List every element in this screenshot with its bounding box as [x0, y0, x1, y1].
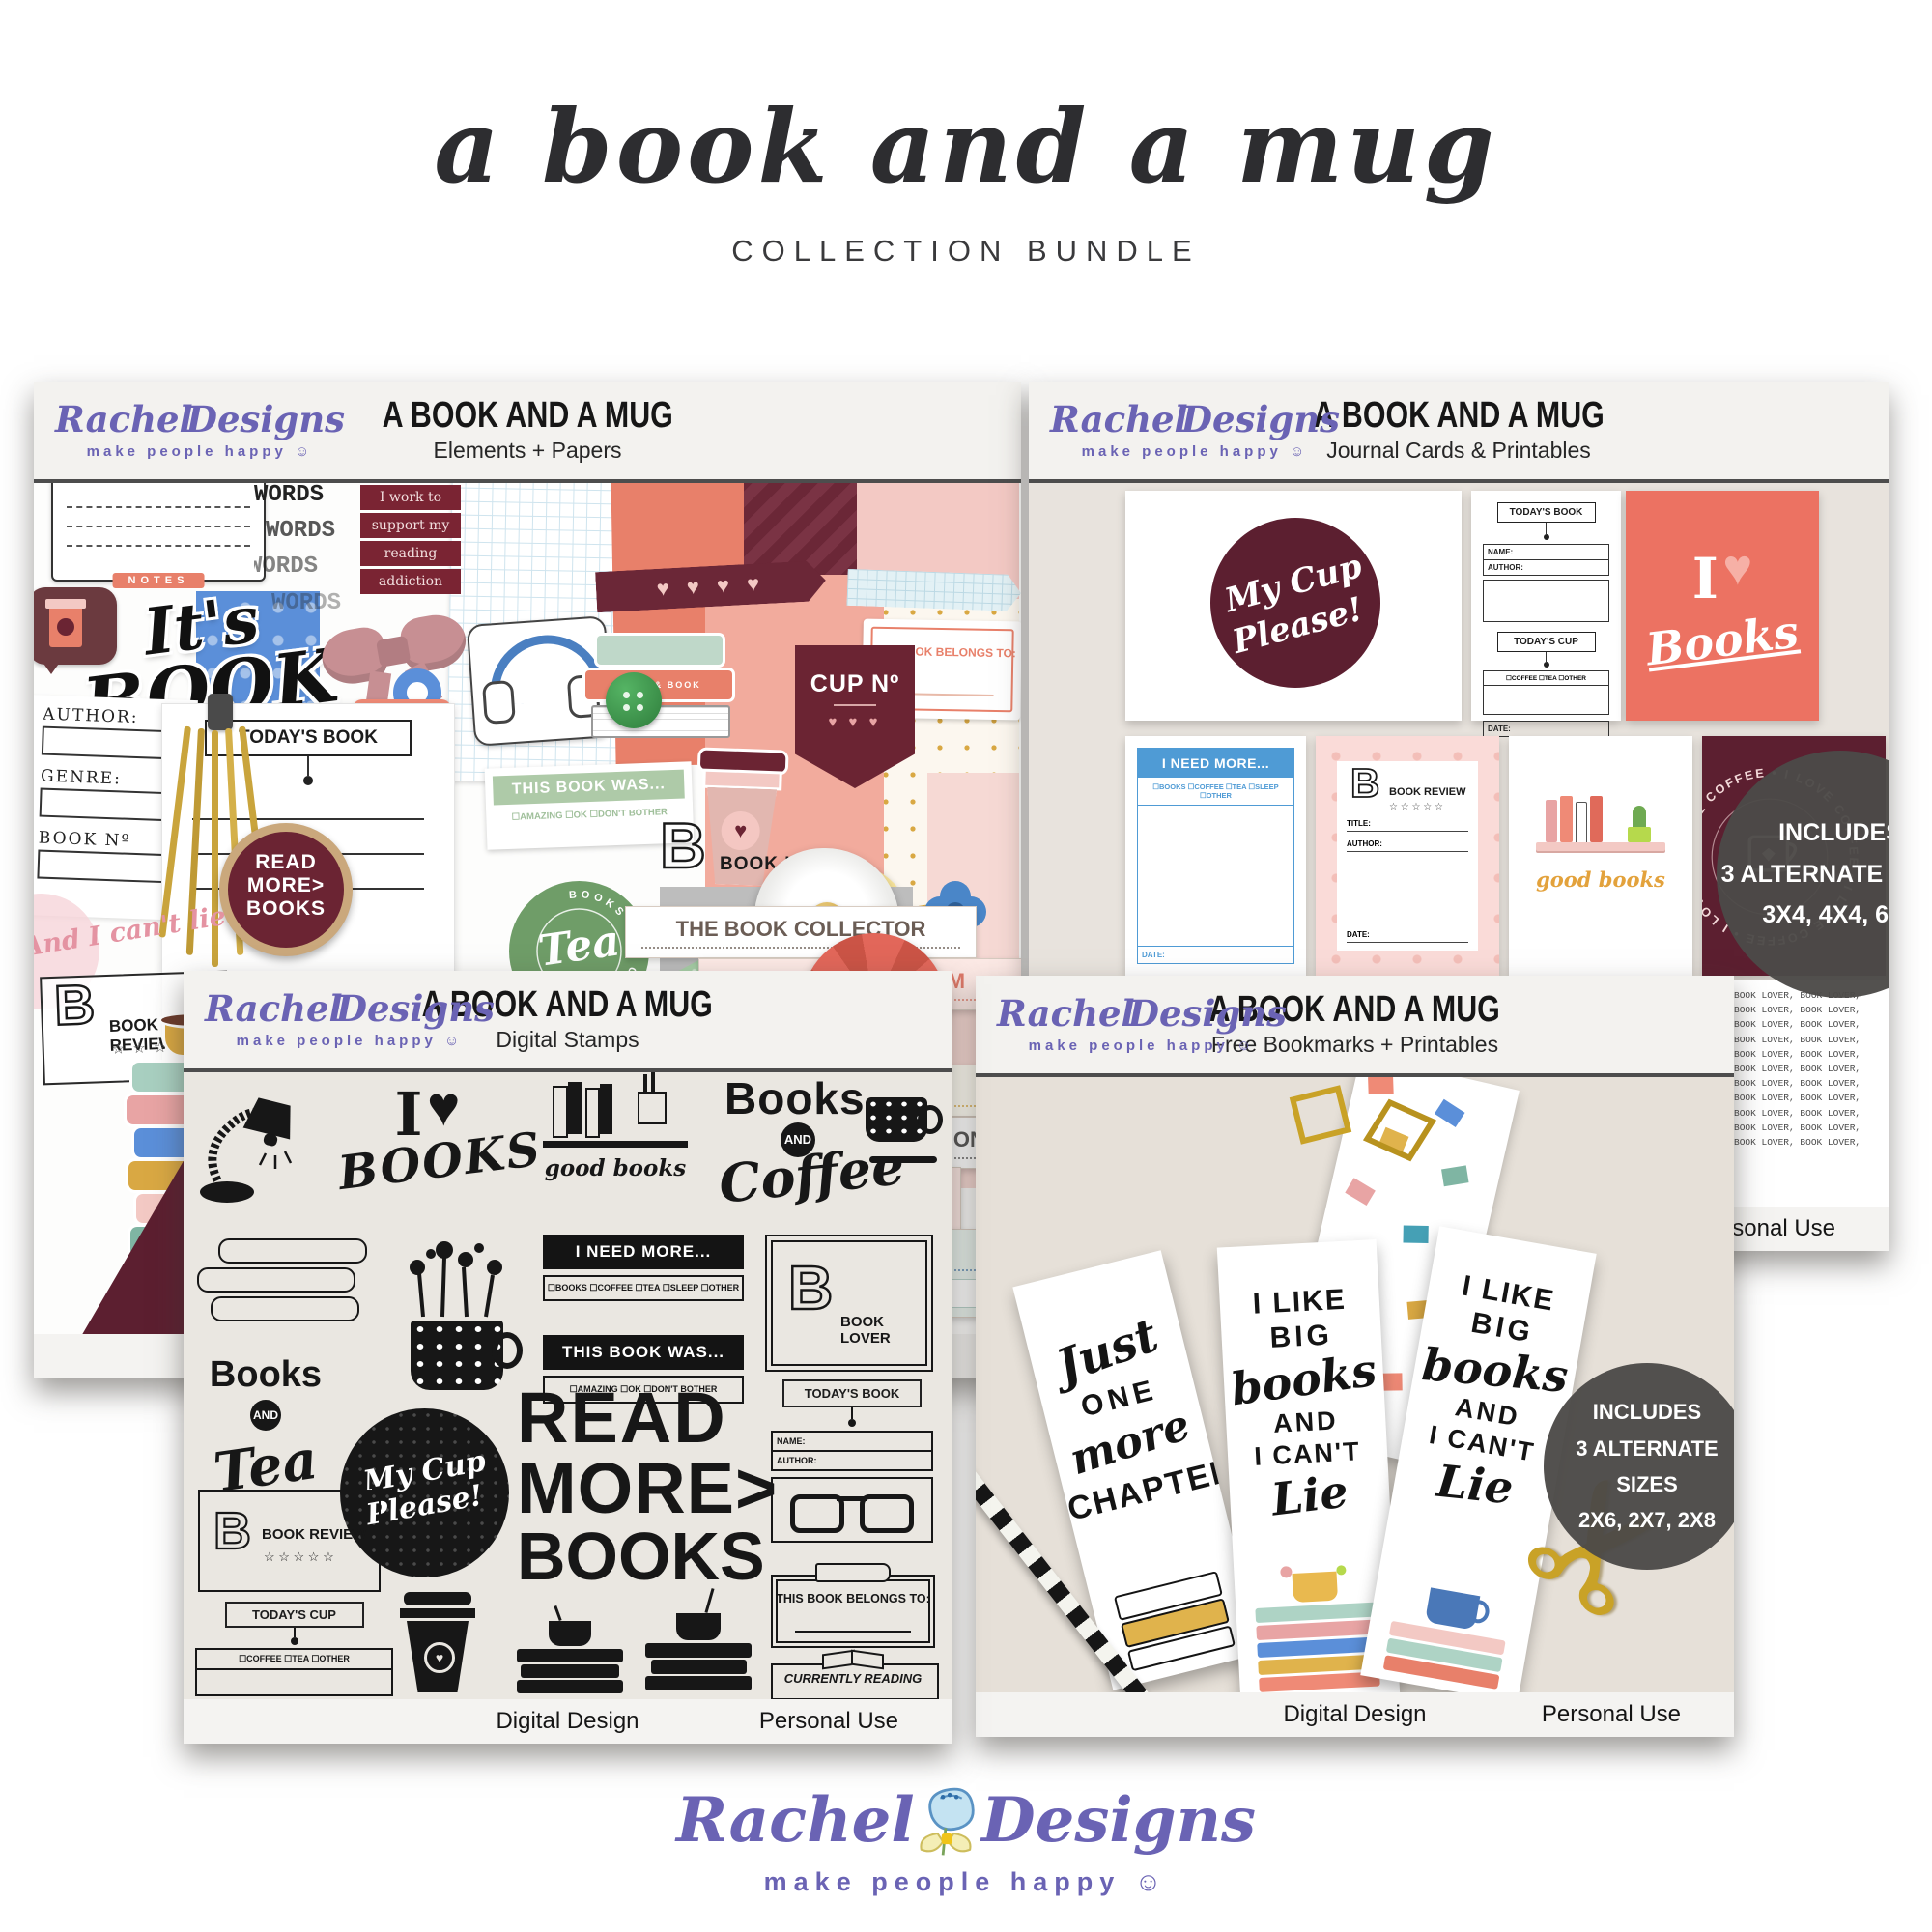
reading-addiction-banner: I work to support my reading addiction: [360, 485, 461, 594]
i-need-more-card: I NEED MORE... ☐BOOKS ☐COFFEE ☐TEA ☐SLEE…: [1125, 736, 1306, 976]
smiley-icon: ☺: [295, 443, 313, 460]
i-love-books-stamp: I ♥ BOOKS: [338, 1074, 517, 1229]
brand-tagline: make people happy: [87, 443, 287, 460]
panel-subtitle: Journal Cards & Printables: [1326, 438, 1591, 464]
lamp-stamp-icon: [198, 1084, 309, 1209]
product-collage-page: a book and a mug COLLECTION BUNDLE Rache…: [0, 0, 1932, 1932]
book-lover-frame-stamp: B BOOK LOVER: [765, 1235, 933, 1372]
blue-teacup-illustration: [1383, 1581, 1513, 1689]
grid-washi-tape: [846, 569, 1021, 611]
brand-second: Designs: [981, 1784, 1256, 1857]
smiley-icon: ☺: [1290, 443, 1308, 460]
brand-second: Designs: [336, 987, 495, 1030]
brand-second: Designs: [1128, 992, 1287, 1035]
rachel-designs-logo: Rachel Designs make people happy ☺: [205, 979, 495, 1049]
todays-cup-stamp: TODAY'S CUP ☐COFFEE ☐TEA ☐OTHER DATE:: [195, 1602, 393, 1694]
rachel-designs-logo: Rachel Designs make people happy ☺: [1050, 389, 1340, 460]
brand-first: Rachel: [997, 992, 1135, 1035]
glasses-icon: [771, 1477, 933, 1543]
panel-bookmarks: Rachel Designs make people happy ☺ A BOO…: [976, 976, 1734, 1737]
bookmarks-photo: Just ONE more CHAPTER I LIKE BIG books A…: [976, 1077, 1734, 1692]
rachel-designs-logo: Rachel Designs make people happy ☺: [55, 389, 345, 460]
read-more-books-button: READ MORE> BOOKS: [219, 823, 353, 956]
brand-first: Rachel: [1050, 398, 1188, 440]
license-label: Personal Use: [759, 1708, 898, 1735]
design-label: Digital Design: [496, 1708, 639, 1735]
panel-digital-stamps: Rachel Designs make people happy ☺ A BOO…: [184, 971, 952, 1744]
panel-header: Rachel Designs make people happy ☺ A BOO…: [34, 382, 1021, 483]
brand-tagline: make people happy: [1029, 1037, 1229, 1054]
panel-header: Rachel Designs make people happy ☺ A BOO…: [976, 976, 1734, 1077]
teacup-on-books-stamp: [645, 1613, 752, 1696]
rachel-designs-footer-logo: Rachel Designs make people happy ☺: [676, 1763, 1256, 1897]
panel-footer: Digital Design Personal Use: [976, 1692, 1734, 1737]
book-stack-outline-icon: [1114, 1571, 1236, 1671]
rachel-designs-logo: Rachel Designs make people happy ☺: [997, 983, 1287, 1054]
page-subtitle: COLLECTION BUNDLE: [0, 234, 1932, 269]
brand-tagline: make people happy: [237, 1033, 437, 1049]
book-review-frame-stamp: B BOOK REVIEW ☆ ☆ ☆ ☆ ☆: [198, 1490, 381, 1592]
panel-title: A BOOK AND A MUG: [346, 397, 709, 434]
brand-first: Rachel: [676, 1784, 915, 1857]
book-lover-pattern-paper: BOOK LOVER, BOOK LOVER, BOOK LOVER, BOOK…: [1724, 980, 1889, 1207]
good-books-card: good books: [1509, 736, 1692, 976]
todays-book-stamp: TODAY'S BOOK NAME: AUTHOR:: [771, 1379, 933, 1558]
panel-header: Rachel Designs make people happy ☺ A BOO…: [184, 971, 952, 1072]
i-love-books-card: I ♥ Books: [1626, 491, 1819, 721]
brand-first: Rachel: [205, 987, 343, 1030]
panel-header: Rachel Designs make people happy ☺ A BOO…: [1029, 382, 1889, 483]
button-icon: [606, 672, 662, 728]
brand-tagline: make people happy: [764, 1867, 1122, 1896]
book-stack-sticker: BOOK & BOOK: [580, 636, 746, 744]
brand-tagline: make people happy: [1082, 443, 1282, 460]
smiley-icon: ☺: [1236, 1037, 1255, 1054]
design-label: Digital Design: [1283, 1701, 1426, 1728]
belongs-frame-stamp: THIS BOOK BELONGS TO:: [771, 1575, 935, 1648]
i-need-more-stamp: I NEED MORE... ☐BOOKS ☐COFFEE ☐TEA ☐SLEE…: [543, 1235, 744, 1323]
stamps-sheet: I ♥ BOOKS good books: [184, 1072, 952, 1699]
floral-teacup-icon: [866, 1097, 941, 1155]
open-book-icon: [822, 1650, 884, 1667]
read-more-books-stamp: READ MORE> BOOKS: [517, 1383, 768, 1615]
smiley-icon: ☺: [1135, 1867, 1169, 1896]
good-books-shelf-stamp: good books: [533, 1078, 697, 1204]
todays-book-card: TODAY'S BOOK NAME:AUTHOR: TODAY'S CUP ☐C…: [1471, 491, 1621, 721]
book-icon: [815, 1563, 891, 1582]
book-review-card: B BOOK REVIEW ☆ ☆ ☆ ☆ ☆ TITLE: AUTHOR: D…: [1316, 736, 1499, 976]
panel-footer: Digital Design Personal Use: [184, 1699, 952, 1744]
book-stack-stamp: [191, 1238, 375, 1330]
flower-mug-stamp: [384, 1225, 529, 1399]
panel-subtitle: Digital Stamps: [496, 1027, 639, 1053]
notes-label: NOTES: [113, 573, 205, 588]
books-and-coffee-stamp: Books AND Coffee: [724, 1072, 947, 1236]
notes-card: NOTES: [51, 483, 266, 582]
brand-first: Rachel: [55, 398, 193, 440]
flower-icon: [905, 1763, 991, 1877]
my-cup-please-card: My Cup Please!: [1125, 491, 1462, 721]
currently-reading-frame-stamp: CURRENTLY READING: [771, 1663, 935, 1696]
teacup-on-books-stamp: [517, 1621, 623, 1696]
page-title: a book and a mug: [0, 87, 1932, 206]
license-label: Personal Use: [1542, 1701, 1681, 1728]
tag-book-collector: THE BOOK COLLECTOR: [625, 906, 977, 958]
smiley-icon: ☺: [444, 1033, 463, 1049]
panel-subtitle: Elements + Papers: [434, 438, 622, 464]
brand-second: Designs: [1181, 398, 1340, 440]
cactus-icon: [1633, 806, 1646, 829]
brand-second: Designs: [186, 398, 345, 440]
travel-mug-icon: ♥: [394, 1592, 481, 1696]
